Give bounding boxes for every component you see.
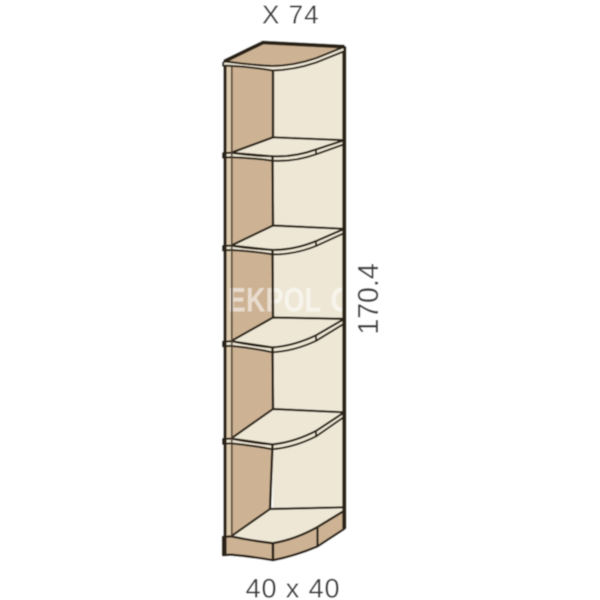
svg-text:O: O <box>331 280 353 319</box>
svg-text:X 74: X 74 <box>262 0 320 30</box>
svg-text:40 x 40: 40 x 40 <box>246 574 341 600</box>
svg-text:170.4: 170.4 <box>353 263 385 334</box>
svg-text:EKPOL: EKPOL <box>228 281 321 319</box>
